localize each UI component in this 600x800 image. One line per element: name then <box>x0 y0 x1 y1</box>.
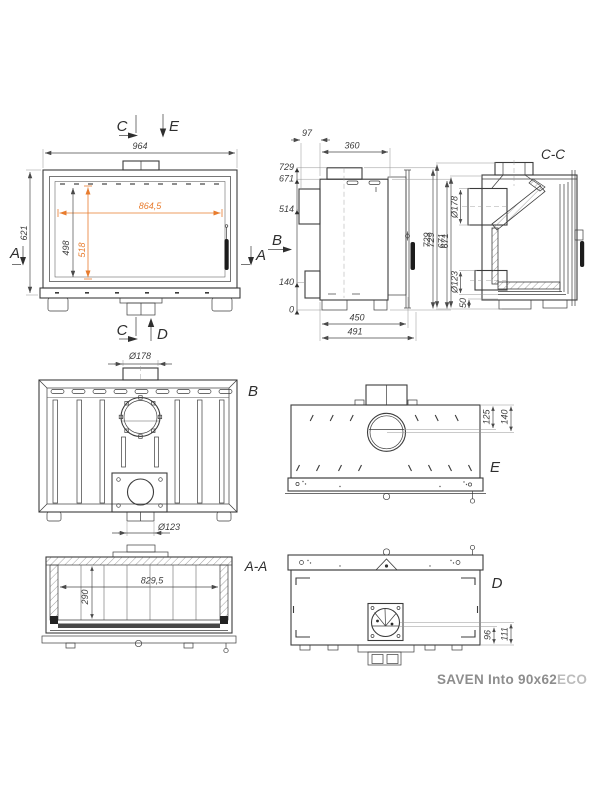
hook-bottom-view <box>470 545 474 549</box>
dim-glass-height: 518 <box>77 242 87 257</box>
dim-rear-flue: Ø178 <box>128 351 151 361</box>
dim-bottom-96: 96 <box>483 630 493 640</box>
dim-side-top-depth: 360 <box>344 141 359 151</box>
view-marker-d-group: D <box>148 318 168 343</box>
rear-lower-stub <box>305 271 320 298</box>
section-marker-c-top: C <box>117 118 128 135</box>
view-marker-b-group: B <box>268 232 292 253</box>
dim-rear-outlet: Ø123 <box>157 522 180 532</box>
dim-aa-inner-width: 829,5 <box>141 576 165 586</box>
rear-view: B Ø178 <box>39 351 258 536</box>
rear-convection-ribs <box>53 400 224 503</box>
section-cc-title: C-C <box>541 147 565 162</box>
center-screw-top <box>383 493 389 499</box>
dim-side-h514: 514 <box>279 204 294 214</box>
bottom-view-d: D <box>288 545 514 665</box>
baffle-plate <box>492 186 545 230</box>
air-damper <box>368 604 403 641</box>
top-view-e: E 125 <box>285 385 514 503</box>
hook-top-view <box>470 499 474 503</box>
dim-glass-width: 864,5 <box>139 201 163 211</box>
rear-upper-stub <box>299 189 320 224</box>
firebox-panel-joints <box>81 565 196 620</box>
center-screw-aa <box>135 640 141 646</box>
drawing-canvas: C E 964 <box>0 0 600 800</box>
top-vent-ticks <box>297 415 472 471</box>
rear-flue-circle <box>119 396 162 439</box>
dim-side-h0: 0 <box>289 305 294 315</box>
product-variant: ECO <box>557 672 587 687</box>
view-marker-d: D <box>157 326 168 343</box>
section-aa-title: A-A <box>244 559 268 574</box>
product-name: SAVEN Into 90x62 <box>437 672 557 687</box>
corner-brackets <box>294 578 478 637</box>
grate-bar <box>58 624 220 629</box>
dim-side-h671: 671 <box>279 174 294 184</box>
view-marker-b: B <box>272 232 282 249</box>
dim-side-depth-total: 491 <box>347 327 362 337</box>
dim-side-h729: 729 <box>279 162 294 172</box>
dim-cc-base: 50 <box>458 298 468 308</box>
section-marker-c-bottom-group: C <box>117 317 138 342</box>
product-title: SAVEN Into 90x62 ECO <box>437 672 587 687</box>
dim-bottom-111: 111 <box>500 627 510 641</box>
view-marker-e-group: E <box>160 114 180 138</box>
rear-view-label: B <box>248 383 258 400</box>
rear-top-vents <box>47 390 232 398</box>
rear-wall-section <box>492 228 498 284</box>
view-marker-e: E <box>169 118 180 135</box>
dim-side-h140: 140 <box>279 277 294 287</box>
front-view: C E 964 <box>9 114 266 343</box>
dim-cc-total: 729 <box>426 232 436 247</box>
door-handle-side <box>411 242 416 270</box>
door-handle-section <box>580 241 584 267</box>
bottom-view-label: D <box>492 575 503 592</box>
section-marker-a-right: A <box>255 247 266 264</box>
side-view: 97 360 <box>268 128 451 341</box>
section-marker-a-left-group: A <box>9 245 26 266</box>
section-marker-a-left: A <box>9 245 20 262</box>
floor-section <box>498 282 560 289</box>
drawing-page: C E 964 <box>0 0 600 800</box>
section-marker-c-bottom: C <box>117 322 128 339</box>
dim-cc-body: 671 <box>440 233 450 248</box>
section-marker-c-top-group: C <box>117 115 138 139</box>
dim-side-depth-inner: 450 <box>349 313 364 323</box>
glass-dimensions: 864,5 518 <box>58 186 222 279</box>
rear-air-inlet <box>112 473 167 521</box>
dim-cc-outlet: Ø123 <box>450 271 460 294</box>
dim-aa-inner-height: 290 <box>80 589 90 605</box>
hook-aa <box>224 648 228 652</box>
section-marker-a-right-group: A <box>241 246 266 266</box>
dim-top-140: 140 <box>500 409 510 424</box>
center-screw-bottom <box>383 549 389 555</box>
section-cc-view: C-C 729 671 <box>426 147 584 309</box>
dim-top-125: 125 <box>482 409 492 425</box>
dim-side-rear-offset: 97 <box>302 128 313 138</box>
dim-front-width: 964 <box>132 141 147 151</box>
flue-stub-side <box>327 168 362 179</box>
dim-front-height: 621 <box>19 225 29 240</box>
section-aa-view: A-A 829,5 290 <box>42 545 267 653</box>
dim-door-height: 498 <box>61 240 71 255</box>
dim-cc-flue: Ø178 <box>450 196 460 219</box>
top-view-label: E <box>490 459 501 476</box>
